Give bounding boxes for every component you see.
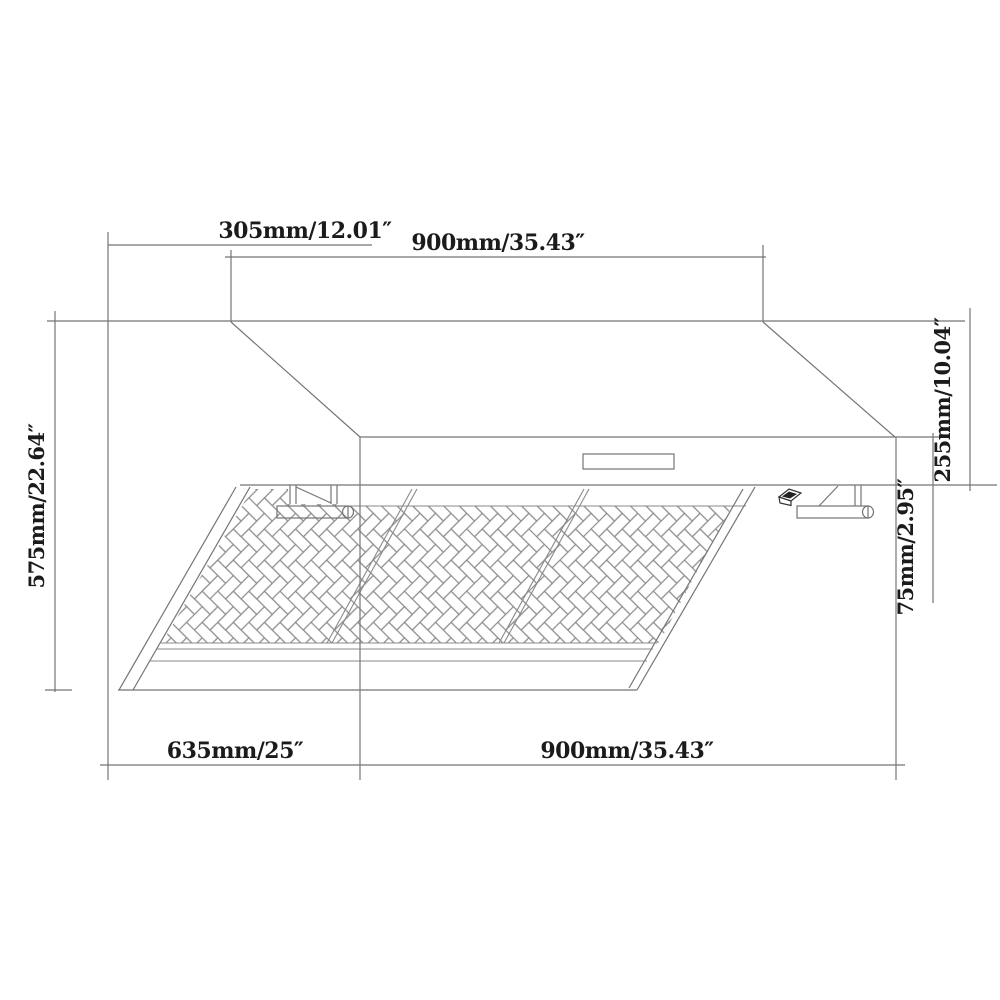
dim-label-front-lip: 75mm/2.95″ — [893, 478, 918, 615]
canopy — [231, 322, 997, 485]
right-lamp — [779, 485, 874, 518]
control-panel — [583, 454, 674, 469]
dim-label-bottom-width: 900mm/35.43″ — [540, 738, 714, 764]
right-lamp-tube — [797, 506, 868, 518]
lamp-switch-icon — [779, 489, 801, 506]
baffle-filter-area — [120, 480, 770, 650]
range-hood-dimension-drawing: 305mm/12.01″ 900mm/35.43″ 575mm/22.64″ 2… — [0, 0, 1000, 1000]
dim-label-bottom-depth: 635mm/25″ — [167, 738, 304, 764]
dim-label-body-height: 255mm/10.04″ — [930, 317, 955, 482]
drawing-canvas: 305mm/12.01″ 900mm/35.43″ 575mm/22.64″ 2… — [0, 0, 1000, 1000]
dim-label-top-width: 900mm/35.43″ — [411, 230, 585, 256]
dim-label-top-offset: 305mm/12.01″ — [218, 218, 392, 244]
dim-label-total-height: 575mm/22.64″ — [24, 423, 49, 588]
